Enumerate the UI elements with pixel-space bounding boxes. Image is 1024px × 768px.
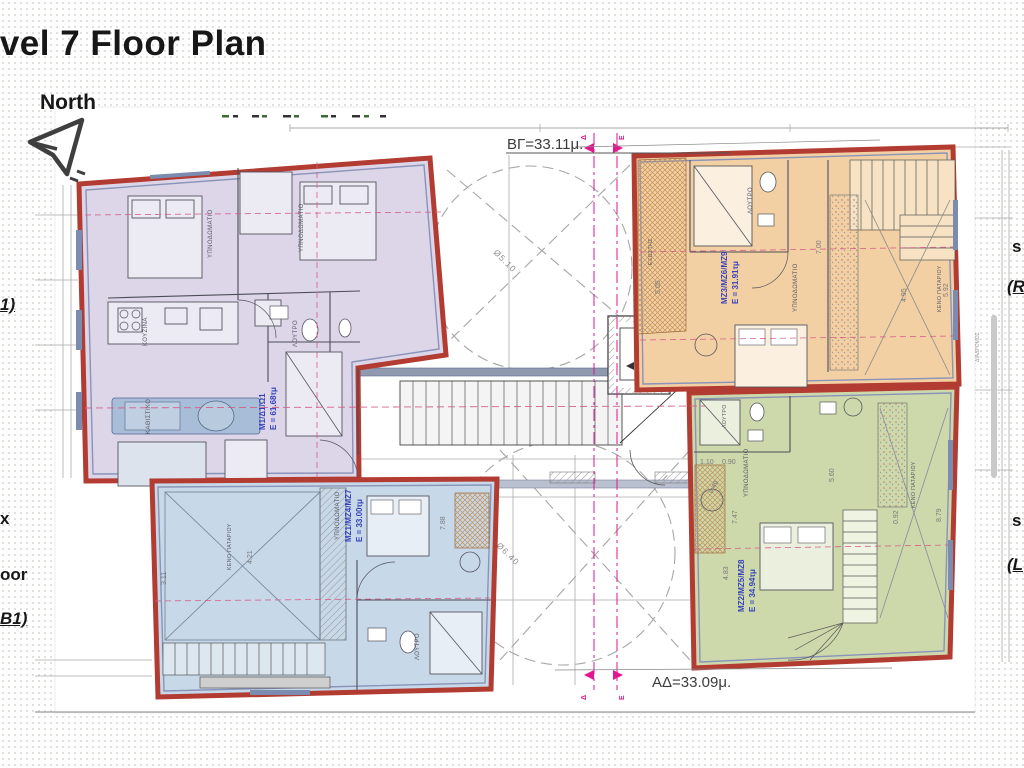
room-label-bedroom-tr: ΥΠΝΟΔΩΜΑΤΙΟ	[793, 263, 799, 312]
left-text-fragment-4: B1)	[0, 609, 27, 629]
dim-747: 7.47	[732, 510, 739, 524]
corridor-vertical-label: ΔΙΑΔΡΟΜΟΣ	[975, 332, 981, 362]
north-arrow-icon	[24, 114, 96, 191]
unit-area-bl: Ε = 33.00τμ	[355, 499, 364, 542]
room-label-bedroom-2: ΥΠΝΟΔΩΜΑΤΙΟ	[299, 203, 305, 252]
room-label-bedroom-bl: ΥΠΝΟΔΩΜΑΤΙΟ	[335, 491, 341, 540]
unit-code-br: ΜΖ2/ΜΖ5/ΜΖ8	[737, 559, 746, 612]
dim-110: 1.10	[700, 459, 714, 466]
left-text-fragment-3: oor	[0, 565, 27, 585]
room-label-bath: ΛΟΥΤΡΟ	[293, 320, 299, 347]
unit-top-right: ΛΟΥΤΡΟ ΥΠΝΟΔΩΜΑΤΙΟ ΚΕΝΟ ΠΑΤΑΡΙΟΥ ΕΞΩΣΤΗΣ…	[634, 147, 959, 390]
dim-700: 7.00	[816, 240, 823, 254]
dim-421: 4.21	[247, 550, 254, 564]
right-text-fragment-3: s	[1012, 511, 1021, 531]
dim-483: 4.83	[723, 566, 730, 580]
room-label-bath-tr: ΛΟΥΤΡΟ	[748, 187, 754, 214]
dim-311: 3.11	[161, 572, 168, 585]
room-label-void-br: ΚΕΝΟ ΠΑΤΑΡΙΟΥ	[911, 461, 917, 508]
dim-592: 5.92	[943, 283, 950, 297]
unit-code-a: Μ1/Δ1/Ω1	[258, 393, 267, 430]
right-text-fragment-4: (L	[1007, 555, 1023, 575]
room-label-bath-br: ΛΟΥΤΡΟ	[722, 404, 728, 428]
dim-560: 5.60	[829, 468, 836, 482]
overall-dim-top: ΒΓ=33.11μ.	[507, 136, 583, 153]
room-label-living: ΚΑΘΙΣΤΙΚΟ	[146, 399, 152, 434]
left-text-fragment-1: 1)	[0, 295, 15, 315]
north-label: North	[40, 91, 96, 115]
right-edge-bar	[991, 315, 997, 478]
dim-495: 4.95	[901, 288, 908, 302]
room-label-balcony-tr: ΕΞΩΣΤΗΣ	[648, 238, 654, 265]
unit-area-tr: Ε = 31.91τμ	[731, 261, 740, 304]
room-label-kitchen: ΚΟΥΖΙΝΑ	[143, 317, 149, 346]
section-letter-e-top: Ε	[619, 135, 626, 140]
right-text-fragment-1: s	[1012, 237, 1021, 257]
unit-code-bl: ΜΖ1/ΜΖ4/ΜΖ7	[344, 489, 353, 542]
room-label-bath-bl: ΛΟΥΤΡΟ	[415, 633, 421, 660]
section-letter-e-bottom: Ε	[619, 695, 626, 700]
unit-area-a: Ε = 61.68τμ	[269, 387, 278, 430]
dim-090: 0.90	[722, 459, 736, 466]
floor-plan-drawing: Ø5.10 Ø6.40	[0, 0, 1024, 768]
left-text-fragment-2: x	[0, 509, 9, 529]
unit-area-br: Ε = 34.94τμ	[748, 569, 757, 612]
right-text-fragment-2: (R	[1007, 277, 1024, 297]
unit-code-tr: ΜΖ3/ΜΖ6/ΜΖ9	[720, 251, 729, 304]
room-label-bedroom-1: ΥΠΝΟΔΩΜΑΤΙΟ	[208, 209, 214, 258]
room-label-void-bl: ΚΕΝΟ ΠΑΤΑΡΙΟΥ	[227, 523, 233, 570]
room-label-bedroom-br: ΥΠΝΟΔΩΜΑΤΙΟ	[744, 448, 750, 497]
dim-092: 0.92	[893, 510, 900, 524]
dim-788: 7.88	[440, 516, 447, 530]
overall-dim-bottom: ΑΔ=33.09μ.	[652, 674, 731, 691]
dim-879: 8.79	[936, 508, 943, 522]
section-letter-d-bottom: Δ	[581, 695, 588, 700]
dim-505: 5.05	[655, 280, 662, 294]
unit-bottom-left: ΚΕΝΟ ΠΑΤΑΡΙΟΥ ΥΠΝΟΔΩΜΑΤΙΟ ΛΟΥΤΡΟ ΜΖ1/ΜΖ4…	[152, 479, 497, 697]
unit-bottom-right: ΛΟΥΤΡΟ ΥΠΝΟΔΩΜΑΤΙΟ ΚΕΝΟ ΠΑΤΑΡΙΟΥ ΜΖ2/ΜΖ5…	[689, 387, 957, 668]
page-title: Level 7 Floor Plan	[0, 24, 267, 64]
